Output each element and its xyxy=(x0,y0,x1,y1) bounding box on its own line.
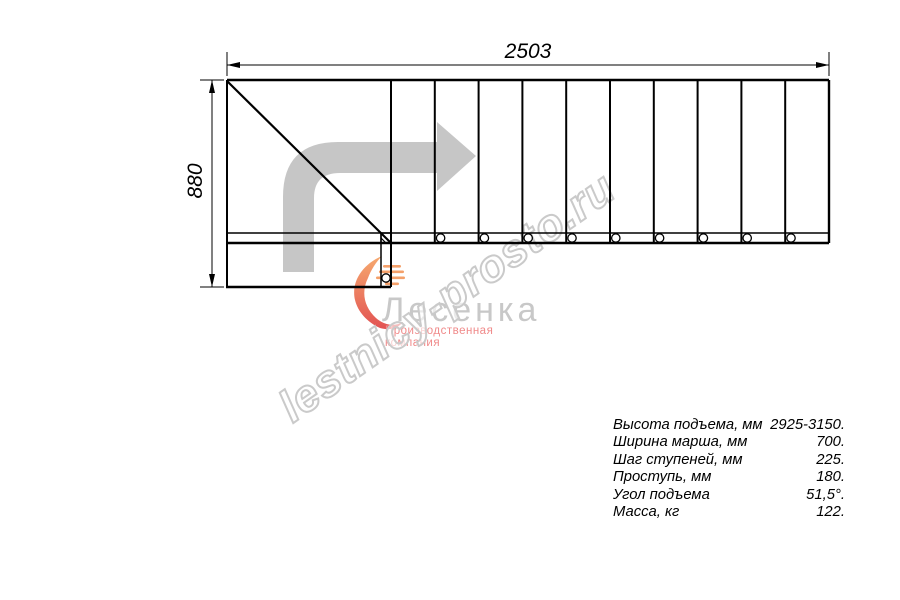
spec-label: Угол подъема xyxy=(613,487,710,504)
baluster-circle xyxy=(787,234,795,242)
baluster-circle xyxy=(436,234,444,242)
spec-row: Высота подъема, мм 2925-3150. xyxy=(613,417,845,434)
spec-value: 51,5°. xyxy=(806,487,845,504)
baluster-circle xyxy=(524,234,532,242)
spec-value: 225. xyxy=(816,452,845,469)
baluster-circle xyxy=(699,234,707,242)
spec-label: Ширина марша, мм xyxy=(613,434,747,451)
stair-plan-drawing: Лесенка Производственная компания lestni… xyxy=(0,0,900,600)
spec-row: Шаг ступеней, мм 225. xyxy=(613,452,845,469)
landing-baluster xyxy=(382,274,390,282)
step-lines xyxy=(391,80,785,287)
spec-label: Масса, кг xyxy=(613,504,679,521)
spec-row: Угол подъема 51,5°. xyxy=(613,487,845,504)
spec-table: Высота подъема, мм 2925-3150. Ширина мар… xyxy=(613,417,845,521)
spec-row: Ширина марша, мм 700. xyxy=(613,434,845,451)
spec-value: 122. xyxy=(816,504,845,521)
baluster-circle xyxy=(655,234,663,242)
baluster-circle xyxy=(612,234,620,242)
spec-row: Масса, кг 122. xyxy=(613,504,845,521)
baluster-circle xyxy=(568,234,576,242)
spec-row: Проступь, мм 180. xyxy=(613,469,845,486)
direction-arrow-icon xyxy=(283,122,476,272)
dimension-width-label: 2503 xyxy=(504,40,552,63)
spec-label: Шаг ступеней, мм xyxy=(613,452,743,469)
spec-label: Высота подъема, мм xyxy=(613,417,763,434)
spec-label: Проступь, мм xyxy=(613,469,711,486)
dimension-height-label: 880 xyxy=(184,163,207,198)
spec-value: 700. xyxy=(816,434,845,451)
baluster-circle xyxy=(480,234,488,242)
spec-value: 180. xyxy=(816,469,845,486)
baluster-circle xyxy=(743,234,751,242)
spec-value: 2925-3150. xyxy=(770,417,845,434)
